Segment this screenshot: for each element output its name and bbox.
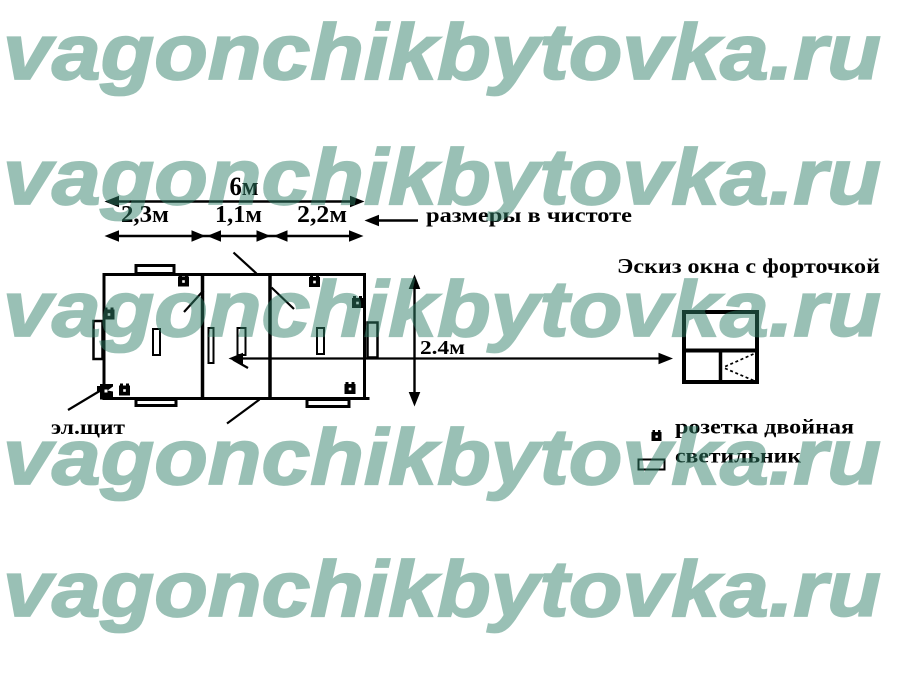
svg-text:vagonchikbytovka.ru: vagonchikbytovka.ru [3, 264, 881, 353]
svg-text:vagonchikbytovka.ru: vagonchikbytovka.ru [3, 7, 881, 96]
svg-text:vagonchikbytovka.ru: vagonchikbytovka.ru [3, 412, 881, 501]
svg-text:vagonchikbytovka.ru: vagonchikbytovka.ru [3, 132, 881, 221]
svg-text:vagonchikbytovka.ru: vagonchikbytovka.ru [3, 544, 881, 633]
